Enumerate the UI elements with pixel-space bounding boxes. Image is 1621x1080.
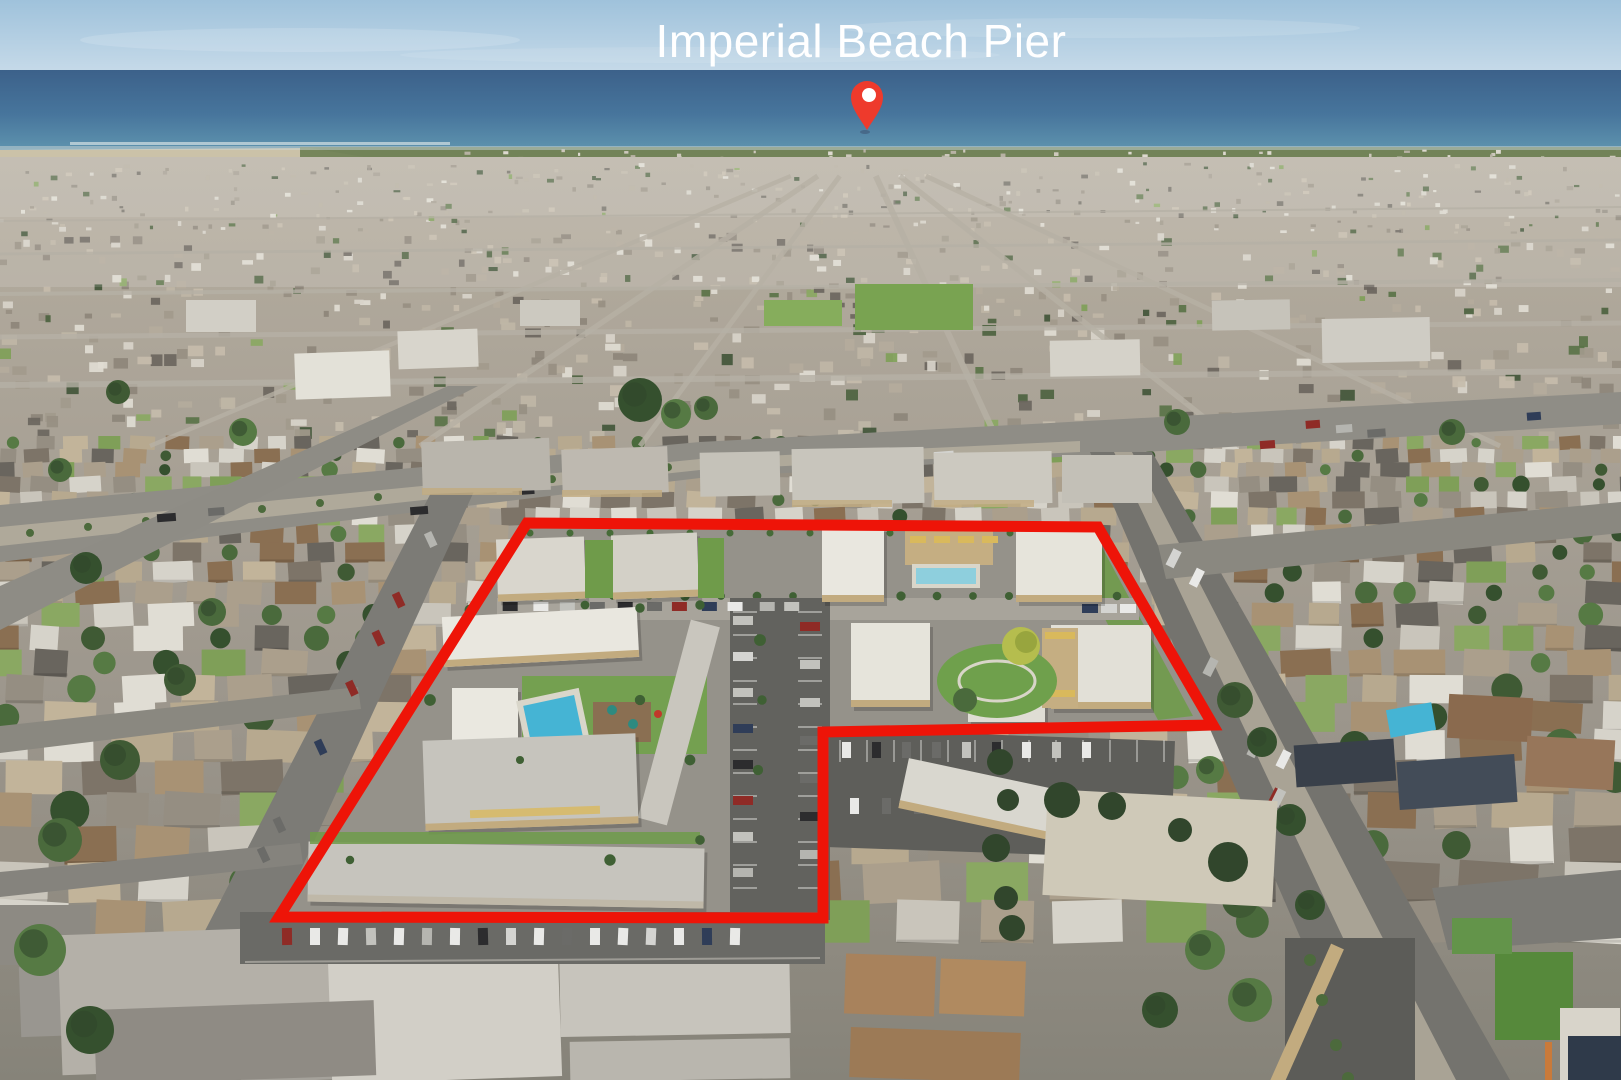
palm-tree [1113, 592, 1122, 601]
car [733, 868, 753, 877]
building [5, 674, 44, 704]
tree [304, 626, 329, 651]
tree [1471, 438, 1480, 447]
building [576, 355, 588, 363]
tree [994, 886, 1018, 910]
beach-town-building [828, 151, 833, 155]
palm-tree [1304, 954, 1316, 966]
beach-town-building [464, 152, 470, 155]
building [1394, 649, 1446, 676]
building [1143, 310, 1149, 316]
tree [1277, 807, 1295, 825]
building [11, 322, 20, 329]
building [22, 462, 43, 478]
apartment-building [822, 528, 884, 602]
car [310, 928, 320, 945]
building [774, 384, 789, 390]
building [1312, 581, 1341, 604]
beach-town-building [951, 151, 956, 154]
building [331, 581, 366, 605]
building [111, 313, 121, 317]
car [282, 928, 292, 945]
building [1101, 294, 1106, 301]
building [215, 347, 225, 356]
tree [1098, 792, 1126, 820]
tree [953, 688, 977, 712]
car [962, 742, 971, 758]
tree [1015, 631, 1037, 653]
tree [222, 544, 238, 560]
building [0, 476, 21, 493]
building-wall [851, 700, 930, 707]
building [1468, 299, 1474, 304]
building [186, 300, 256, 332]
building [1300, 315, 1306, 321]
palm-tree [346, 856, 354, 864]
building [335, 422, 343, 431]
building [12, 366, 26, 374]
building [1252, 603, 1294, 627]
building [939, 959, 1026, 1017]
building [497, 422, 506, 434]
building [122, 674, 167, 705]
lawn [1211, 508, 1237, 526]
building [1568, 825, 1621, 866]
building [1493, 350, 1509, 359]
tree [71, 1011, 97, 1037]
building [148, 602, 195, 628]
building [1299, 384, 1314, 393]
palm-tree [753, 765, 763, 775]
apartment-building [452, 688, 518, 742]
building [47, 416, 58, 427]
building [857, 347, 873, 359]
building [186, 417, 200, 423]
building [1502, 448, 1524, 463]
building [1494, 308, 1502, 315]
car [672, 602, 687, 611]
building [1363, 561, 1404, 584]
beach-town-building [1404, 151, 1410, 153]
beach-town-building [578, 153, 580, 156]
beach-town-building [1054, 152, 1058, 156]
awning [1045, 632, 1075, 639]
building-shadow [6, 700, 44, 703]
beach-town-building [754, 151, 756, 154]
building [28, 418, 40, 425]
car [733, 796, 753, 805]
awning [958, 536, 974, 543]
building [1579, 336, 1588, 347]
beach-town-building [1496, 150, 1501, 154]
building [1609, 675, 1621, 703]
building [61, 398, 71, 408]
tree [330, 526, 346, 542]
building [1204, 476, 1228, 492]
building [695, 296, 704, 301]
building [409, 387, 423, 396]
building [561, 446, 669, 496]
building [592, 436, 615, 450]
building [1408, 448, 1431, 463]
car [674, 928, 684, 945]
building [1308, 476, 1328, 493]
car [560, 602, 575, 611]
building-shadow [1434, 825, 1476, 828]
lawn-strip [585, 540, 613, 598]
car [450, 928, 460, 945]
car [800, 812, 820, 821]
building [1569, 448, 1591, 463]
building [1535, 491, 1568, 509]
palm-tree [807, 530, 814, 537]
building [570, 1038, 791, 1080]
building [1170, 298, 1179, 305]
building [845, 293, 855, 298]
building [1405, 730, 1445, 762]
building [442, 561, 466, 582]
building [243, 561, 276, 583]
building [894, 413, 908, 421]
building [535, 351, 544, 359]
building [1375, 448, 1398, 464]
car [647, 602, 662, 611]
building [93, 602, 134, 628]
building [1040, 390, 1054, 399]
car [1305, 420, 1320, 429]
building [163, 791, 221, 830]
building [767, 408, 780, 414]
car [872, 742, 881, 758]
palm-tree [635, 695, 645, 705]
building [396, 448, 422, 463]
building [606, 334, 615, 343]
tree [1199, 759, 1214, 774]
building [710, 317, 718, 321]
building [184, 448, 209, 463]
car [932, 742, 941, 758]
car [1052, 742, 1061, 758]
building [155, 760, 204, 794]
palm-tree [757, 695, 766, 704]
tree [1531, 653, 1551, 673]
building [790, 363, 804, 372]
building [1246, 462, 1274, 477]
building [1370, 476, 1396, 493]
palm-tree [581, 601, 590, 610]
building [1545, 1042, 1552, 1080]
building [1612, 361, 1621, 368]
building-wall [1016, 595, 1102, 602]
building [625, 321, 631, 327]
building [151, 410, 161, 418]
building [1074, 413, 1083, 420]
car [338, 928, 349, 945]
pin-shadow [860, 130, 870, 134]
building [1439, 492, 1461, 509]
building [484, 429, 495, 437]
building [830, 292, 840, 300]
building [1327, 395, 1340, 402]
building [879, 341, 894, 351]
building [1220, 462, 1238, 478]
building [764, 300, 842, 326]
beach-town-building [1369, 154, 1372, 158]
building [85, 345, 93, 353]
building [1153, 337, 1168, 347]
building [354, 300, 363, 304]
building [896, 899, 960, 943]
palm-tree [424, 694, 436, 706]
tree [1593, 478, 1605, 490]
beach-town-building [1259, 152, 1263, 154]
building [1559, 435, 1581, 450]
building [1395, 602, 1438, 628]
car [1260, 440, 1276, 449]
lawn [1522, 436, 1548, 449]
building [5, 760, 62, 794]
building [220, 759, 284, 795]
tree [1265, 583, 1284, 602]
tree [1512, 476, 1529, 493]
building [1582, 378, 1592, 389]
building [1601, 449, 1621, 463]
building [421, 438, 551, 494]
building [1473, 309, 1481, 317]
building [1078, 330, 1087, 337]
building [268, 436, 286, 450]
palm-tree [695, 600, 704, 609]
car [800, 850, 820, 859]
building [137, 357, 151, 365]
building [1044, 315, 1050, 322]
lawn [1406, 476, 1429, 492]
lawn [1439, 476, 1459, 492]
aerial-photo-imperial-beach: Imperial Beach Pier [0, 0, 1621, 1080]
tree [1146, 996, 1166, 1016]
building [548, 364, 556, 375]
lawn [1305, 675, 1346, 703]
haze [0, 157, 1621, 217]
building [1211, 491, 1238, 509]
building [151, 298, 160, 305]
building [1532, 449, 1558, 464]
building [0, 448, 17, 463]
building [1380, 462, 1409, 477]
building [115, 462, 140, 477]
building [1447, 694, 1533, 742]
building [501, 323, 515, 331]
building [605, 344, 620, 351]
building [1294, 739, 1397, 788]
tree [167, 667, 185, 685]
building [251, 339, 263, 346]
building [164, 354, 176, 366]
lawn [202, 650, 246, 677]
building [177, 349, 188, 359]
building [1574, 791, 1621, 829]
building [613, 353, 623, 360]
building [1431, 352, 1443, 359]
building [114, 358, 128, 368]
building [996, 299, 1004, 303]
tree [1393, 582, 1415, 604]
awning [934, 536, 950, 543]
car [800, 660, 820, 669]
building [519, 404, 527, 414]
building [787, 292, 792, 300]
building [136, 414, 150, 421]
building [1295, 625, 1341, 651]
car [618, 928, 629, 945]
awning [910, 536, 926, 543]
building [1517, 343, 1528, 353]
building [380, 293, 386, 299]
building [1462, 462, 1486, 478]
building [276, 394, 286, 403]
building [133, 625, 183, 651]
building [742, 357, 754, 368]
building [127, 416, 136, 427]
building [1601, 308, 1608, 315]
scene-svg: Imperial Beach Pier [0, 0, 1621, 1080]
building [403, 303, 411, 307]
building [275, 582, 316, 604]
cloud [80, 28, 520, 52]
tree [1442, 422, 1456, 436]
car [800, 736, 820, 745]
building [199, 436, 223, 449]
building [1290, 318, 1300, 324]
tree [1189, 934, 1211, 956]
car [1527, 412, 1542, 421]
beach-town-building [503, 151, 508, 154]
tree [1580, 564, 1595, 579]
horizon-haze [0, 146, 1621, 150]
building [24, 448, 50, 464]
building [1285, 462, 1307, 478]
tree [1364, 628, 1384, 648]
car [478, 928, 488, 945]
building [219, 448, 244, 463]
building [123, 342, 133, 349]
building [1360, 296, 1366, 301]
building [194, 730, 233, 763]
building [1519, 305, 1529, 312]
building [1058, 309, 1064, 317]
building [85, 314, 92, 319]
lawn [1496, 462, 1516, 477]
car [1367, 428, 1386, 437]
tree [50, 460, 63, 473]
lawn-strip [698, 538, 724, 598]
building [164, 311, 173, 319]
tree [1355, 582, 1377, 604]
car [902, 742, 911, 758]
car [534, 928, 544, 945]
car [882, 798, 891, 814]
building [1489, 300, 1497, 306]
tree [987, 749, 1013, 775]
building [0, 348, 11, 359]
umbrella [628, 719, 638, 729]
building [849, 1027, 1021, 1080]
beach-town-building [1267, 151, 1271, 155]
building [69, 476, 101, 494]
building [33, 648, 68, 677]
palm-tree [258, 505, 266, 513]
building [729, 389, 739, 398]
building [135, 581, 173, 606]
building [1309, 603, 1340, 627]
building [1440, 448, 1467, 463]
building [1297, 359, 1311, 366]
lawn [1454, 626, 1489, 651]
building [1050, 320, 1057, 325]
building [1499, 376, 1514, 388]
tree [232, 421, 247, 436]
building-shadow [1583, 559, 1611, 562]
building [1081, 305, 1087, 312]
car [733, 724, 753, 733]
building [965, 353, 974, 363]
courtyard-lawn [937, 644, 1057, 718]
building [173, 542, 202, 562]
building [294, 436, 311, 450]
building [1138, 318, 1145, 324]
building [1093, 313, 1104, 317]
building [89, 362, 103, 372]
car [733, 688, 753, 697]
building [1455, 289, 1465, 297]
tree [982, 834, 1010, 862]
tree [1414, 493, 1428, 507]
building-wall [422, 488, 522, 495]
building-shadow [1351, 624, 1383, 627]
car [730, 928, 740, 945]
palm-tree [604, 854, 615, 865]
building [1064, 294, 1071, 302]
palm-tree [607, 530, 614, 537]
building [397, 329, 478, 370]
lawn-strip [310, 832, 700, 844]
palm-tree [84, 523, 92, 531]
building-wall [934, 500, 1034, 507]
building [6, 310, 12, 314]
palm-tree [567, 530, 574, 537]
building [1525, 736, 1615, 791]
building [1173, 353, 1181, 365]
lawn [0, 650, 22, 677]
car [1120, 604, 1136, 613]
building [752, 394, 766, 403]
building [296, 524, 319, 544]
building [1019, 401, 1032, 411]
building [29, 625, 59, 652]
tree [772, 494, 784, 506]
building [1211, 293, 1221, 300]
map-pin-label: Imperial Beach Pier [656, 15, 1067, 67]
car [800, 698, 820, 707]
building [1506, 542, 1536, 563]
tree [1221, 686, 1241, 706]
playground [654, 710, 662, 718]
building [1388, 292, 1396, 297]
building [1336, 476, 1361, 492]
building [226, 581, 262, 605]
building [1509, 825, 1554, 865]
palm-tree [969, 592, 977, 600]
